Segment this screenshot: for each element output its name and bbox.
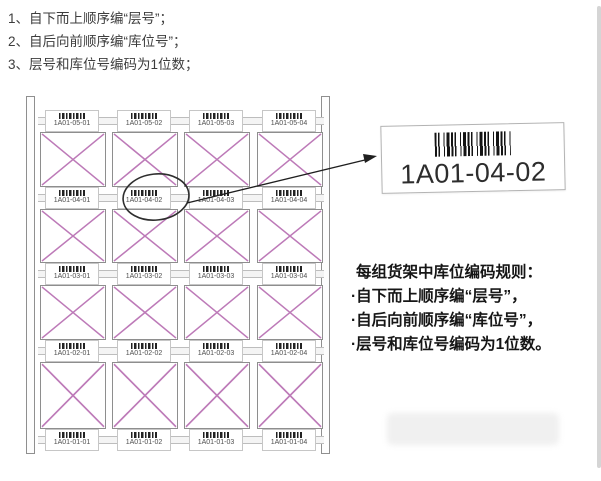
article-page: 1、自下而上顺序编“层号”； 2、自后向前顺序编“库位号”； 3、层号和库位号编… — [0, 0, 601, 481]
list-item-3: 3、层号和库位号编码为1位数； — [8, 53, 199, 76]
cross-brace-icon — [185, 363, 249, 428]
rack-cell — [112, 285, 178, 340]
location-label: 1A01-01-04 — [262, 429, 316, 451]
rack-cell — [257, 285, 323, 340]
location-label-text: 1A01-04-02 — [118, 196, 170, 205]
barcode-icon — [434, 131, 510, 157]
rack-cell — [184, 132, 250, 187]
cross-brace-icon — [113, 210, 177, 262]
cross-brace-icon — [185, 133, 249, 186]
cross-brace-icon — [258, 210, 322, 262]
rack-left-post — [26, 96, 35, 454]
location-label-text: 1A01-01-04 — [263, 438, 315, 447]
rules-text-block: 每组货架中库位编码规则： ·自下而上顺序编“层号”， ·自后向前顺序编“库位号”… — [351, 261, 599, 357]
location-label: 1A01-02-03 — [189, 340, 243, 362]
location-label: 1A01-03-04 — [262, 263, 316, 285]
rack-cell — [184, 362, 250, 429]
rack-cell — [112, 132, 178, 187]
cross-brace-icon — [41, 210, 105, 262]
location-label-text: 1A01-02-01 — [46, 349, 98, 358]
rack-cell — [184, 285, 250, 340]
cross-brace-icon — [41, 133, 105, 186]
location-label: 1A01-04-02 — [117, 187, 171, 209]
location-label: 1A01-04-04 — [262, 187, 316, 209]
cross-brace-icon — [258, 286, 322, 339]
location-label-text: 1A01-02-03 — [190, 349, 242, 358]
rack-cell — [184, 209, 250, 263]
location-label: 1A01-03-03 — [189, 263, 243, 285]
location-label: 1A01-04-01 — [45, 187, 99, 209]
rack-cell — [257, 209, 323, 263]
barcode-label-text: 1A01-04-02 — [382, 156, 565, 191]
rack-cell — [112, 209, 178, 263]
location-label-text: 1A01-01-01 — [46, 438, 98, 447]
location-label: 1A01-05-02 — [117, 110, 171, 132]
rules-item-1: ·自下而上顺序编“层号”， — [351, 285, 599, 309]
cross-brace-icon — [41, 286, 105, 339]
location-label-text: 1A01-04-04 — [263, 196, 315, 205]
location-label: 1A01-03-02 — [117, 263, 171, 285]
location-label: 1A01-05-01 — [45, 110, 99, 132]
location-label-text: 1A01-02-04 — [263, 349, 315, 358]
location-label-text: 1A01-03-03 — [190, 272, 242, 281]
rack-cell — [40, 132, 106, 187]
location-label-text: 1A01-02-02 — [118, 349, 170, 358]
cross-brace-icon — [258, 133, 322, 186]
rack-cell — [112, 362, 178, 429]
location-label: 1A01-03-01 — [45, 263, 99, 285]
location-label-text: 1A01-03-04 — [263, 272, 315, 281]
location-label: 1A01-01-02 — [117, 429, 171, 451]
location-label-text: 1A01-05-01 — [46, 119, 98, 128]
rack-cell — [257, 132, 323, 187]
cross-brace-icon — [258, 363, 322, 428]
location-label-text: 1A01-05-03 — [190, 119, 242, 128]
location-label: 1A01-01-03 — [189, 429, 243, 451]
location-label-text: 1A01-01-03 — [190, 438, 242, 447]
rack-cell — [40, 209, 106, 263]
rules-item-3: ·层号和库位号编码为1位数。 — [351, 333, 599, 357]
cross-brace-icon — [185, 210, 249, 262]
location-label-text: 1A01-01-02 — [118, 438, 170, 447]
location-label-text: 1A01-05-02 — [118, 119, 170, 128]
coding-rules-list: 1、自下而上顺序编“层号”； 2、自后向前顺序编“库位号”； 3、层号和库位号编… — [8, 7, 199, 76]
cross-brace-icon — [41, 363, 105, 428]
location-label: 1A01-02-04 — [262, 340, 316, 362]
shelf-rack-diagram: 1A01-05-011A01-05-021A01-05-031A01-05-04… — [24, 96, 336, 462]
blurred-watermark — [387, 413, 559, 445]
location-label-text: 1A01-04-01 — [46, 196, 98, 205]
rules-title: 每组货架中库位编码规则： — [351, 261, 599, 285]
location-label-text: 1A01-03-01 — [46, 272, 98, 281]
location-label-text: 1A01-04-03 — [190, 196, 242, 205]
location-label: 1A01-05-03 — [189, 110, 243, 132]
list-item-2: 2、自后向前顺序编“库位号”； — [8, 30, 199, 53]
rack-cell — [40, 285, 106, 340]
cross-brace-icon — [113, 133, 177, 186]
enlarged-barcode-label: 1A01-04-02 — [380, 122, 565, 194]
location-label: 1A01-04-03 — [189, 187, 243, 209]
callout-arrowhead-icon — [363, 154, 377, 163]
location-label: 1A01-05-04 — [262, 110, 316, 132]
location-label: 1A01-02-02 — [117, 340, 171, 362]
list-item-1: 1、自下而上顺序编“层号”； — [8, 7, 199, 30]
rack-cell — [257, 362, 323, 429]
location-label-text: 1A01-05-04 — [263, 119, 315, 128]
location-label: 1A01-02-01 — [45, 340, 99, 362]
location-label: 1A01-01-01 — [45, 429, 99, 451]
rack-cell — [40, 362, 106, 429]
location-label-text: 1A01-03-02 — [118, 272, 170, 281]
cross-brace-icon — [113, 363, 177, 428]
cross-brace-icon — [185, 286, 249, 339]
cross-brace-icon — [113, 286, 177, 339]
rules-item-2: ·自后向前顺序编“库位号”， — [351, 309, 599, 333]
scrollbar[interactable] — [597, 6, 601, 468]
